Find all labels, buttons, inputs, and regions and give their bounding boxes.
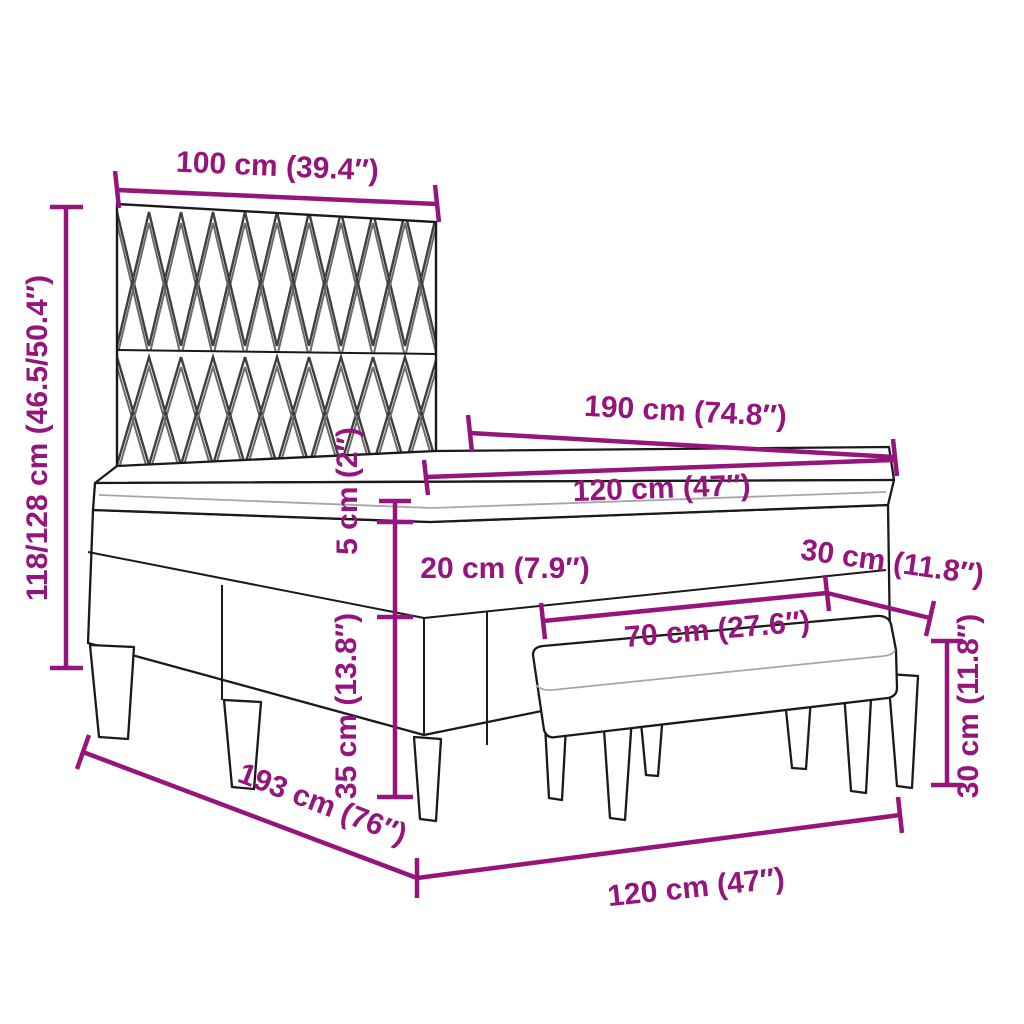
dimension-bed-total-length: 193 cm (76″) [77, 735, 417, 898]
bench-height-label: 30 cm (11.8″) [952, 614, 985, 798]
base-height-label: 35 cm (13.8″) [330, 613, 363, 799]
bed-total-length-label: 193 cm (76″) [233, 757, 411, 852]
dimension-bench-height: 30 cm (11.8″) [931, 614, 985, 798]
bed-leg [414, 737, 441, 821]
mattress-thickness-label: 20 cm (7.9″) [420, 552, 589, 585]
dimension-diagram: 100 cm (39.4″) 118/128 cm (46.5/50.4″) 1… [0, 0, 1024, 1024]
mattress-length-label: 190 cm (74.8″) [583, 390, 787, 434]
mattress-width-top-label: 120 cm (47″) [572, 469, 751, 508]
headboard-width-label: 100 cm (39.4″) [175, 146, 379, 188]
diagram-canvas: 100 cm (39.4″) 118/128 cm (46.5/50.4″) 1… [0, 0, 1024, 1024]
dimension-bed-height: 118/128 cm (46.5/50.4″) [21, 207, 83, 668]
bed-height-label: 118/128 cm (46.5/50.4″) [21, 275, 54, 601]
headboard-upper-panel [117, 204, 436, 354]
headboard [117, 204, 436, 478]
bed-leg [90, 645, 134, 739]
dimension-bed-width-bottom: 120 cm (47″) [417, 797, 902, 913]
topper-thickness-label: 5 cm (2″) [331, 427, 364, 555]
bed-width-bottom-label: 120 cm (47″) [606, 862, 786, 913]
bench-drawing [533, 616, 918, 820]
bed-drawing [88, 204, 894, 821]
